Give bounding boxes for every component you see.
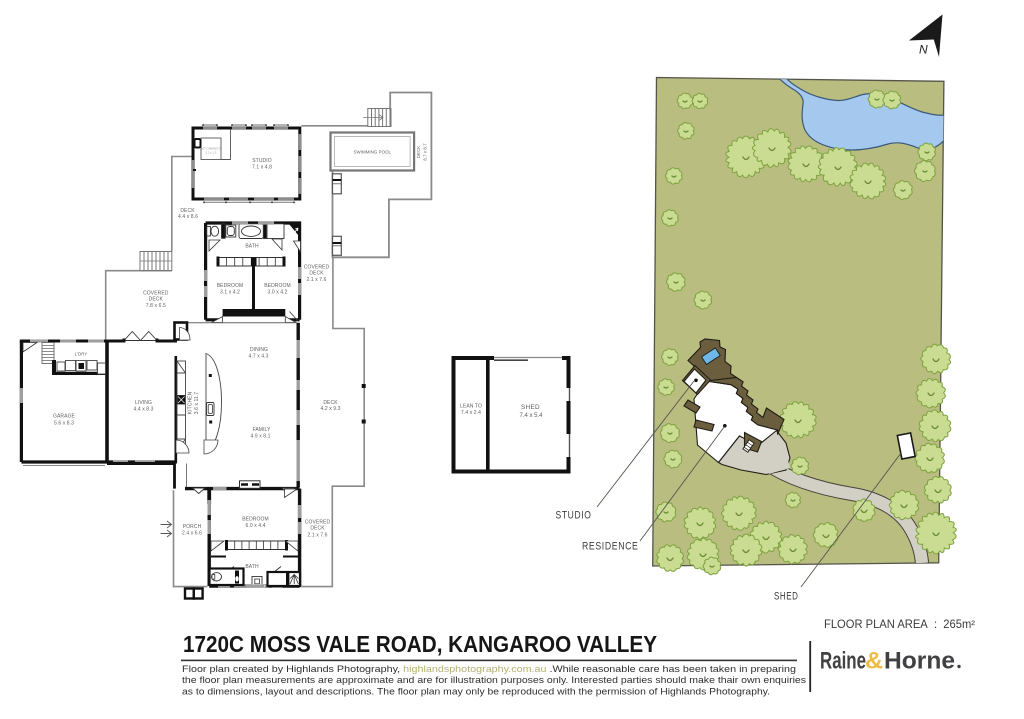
svg-text:SHED: SHED (521, 404, 540, 411)
svg-text:3.0 x 4.2: 3.0 x 4.2 (267, 290, 287, 296)
svg-text:Horne: Horne (884, 648, 955, 675)
svg-text:BATH: BATH (245, 244, 259, 250)
svg-text:4.4 x 8.6: 4.4 x 8.6 (178, 214, 198, 220)
svg-text:7.4 x 2.4: 7.4 x 2.4 (461, 410, 481, 416)
svg-text:SWIMMING POOL: SWIMMING POOL (354, 150, 392, 155)
svg-text:4.9 x 8.1: 4.9 x 8.1 (250, 434, 270, 440)
svg-text:SHED: SHED (774, 591, 799, 603)
svg-text:DECK: DECK (310, 526, 325, 532)
svg-text:2.2 x 1.5: 2.2 x 1.5 (206, 151, 217, 155)
svg-text:&: & (865, 648, 883, 675)
svg-text:DECK: DECK (416, 146, 421, 158)
svg-text:2.4 x 6.6: 2.4 x 6.6 (182, 531, 202, 537)
svg-text:4.7 x 4.3: 4.7 x 4.3 (248, 354, 268, 360)
svg-text:FLOOR PLAN AREA : 265m²: FLOOR PLAN AREA : 265m² (824, 619, 975, 631)
svg-text:STUDIO: STUDIO (556, 510, 592, 522)
svg-text:Floor plan created by Highland: Floor plan created by Highlands Photogra… (182, 664, 796, 675)
svg-text:L'DRY: L'DRY (75, 352, 88, 357)
svg-text:FAMILY: FAMILY (252, 427, 271, 433)
svg-text:STUDIO: STUDIO (252, 158, 272, 164)
svg-text:N: N (919, 43, 928, 57)
svg-text:the floor plan measurements ar: the floor plan measurements are approxim… (182, 675, 806, 686)
svg-text:DINING: DINING (250, 347, 268, 353)
svg-text:2.1 x 7.6: 2.1 x 7.6 (306, 277, 326, 283)
svg-text:DECK: DECK (149, 297, 164, 303)
svg-text:BEDROOM: BEDROOM (242, 517, 269, 523)
svg-text:3.6 x 11.7: 3.6 x 11.7 (194, 392, 200, 415)
svg-text:Raine: Raine (820, 648, 866, 675)
svg-text:7.4 x 5.4: 7.4 x 5.4 (519, 413, 543, 419)
svg-text:7.8 x 6.5: 7.8 x 6.5 (146, 303, 166, 309)
svg-text:4.4 x 8.3: 4.4 x 8.3 (133, 407, 153, 413)
svg-text:5.6 x 8.3: 5.6 x 8.3 (54, 421, 74, 427)
svg-text:6.0 x 4.4: 6.0 x 4.4 (245, 523, 265, 529)
svg-text:as to dimensions, layout and d: as to dimensions, layout and description… (182, 687, 770, 698)
svg-text:LIVING: LIVING (135, 400, 152, 406)
svg-text:2.1 x 7.6: 2.1 x 7.6 (307, 533, 327, 539)
svg-text:LEAN TO: LEAN TO (460, 404, 482, 410)
svg-text:BEDROOM: BEDROOM (264, 283, 291, 289)
svg-text:7.1 x 4.8: 7.1 x 4.8 (252, 165, 272, 171)
svg-text:RESIDENCE: RESIDENCE (582, 541, 639, 553)
svg-text:3.1 x 4.2: 3.1 x 4.2 (220, 290, 240, 296)
svg-text:8.7 x 8.7: 8.7 x 8.7 (423, 143, 428, 161)
svg-text:1720C MOSS VALE ROAD, KANGAROO: 1720C MOSS VALE ROAD, KANGAROO VALLEY (183, 631, 657, 657)
svg-text:GARAGE: GARAGE (53, 414, 76, 420)
svg-text:PORCH: PORCH (183, 524, 202, 530)
svg-text:KITCHEN: KITCHEN (188, 391, 194, 414)
svg-text:4.2 x 9.3: 4.2 x 9.3 (320, 406, 340, 412)
svg-text:DECK: DECK (309, 271, 324, 277)
svg-text:BATH: BATH (245, 564, 259, 570)
svg-text:BEDROOM: BEDROOM (217, 283, 244, 289)
